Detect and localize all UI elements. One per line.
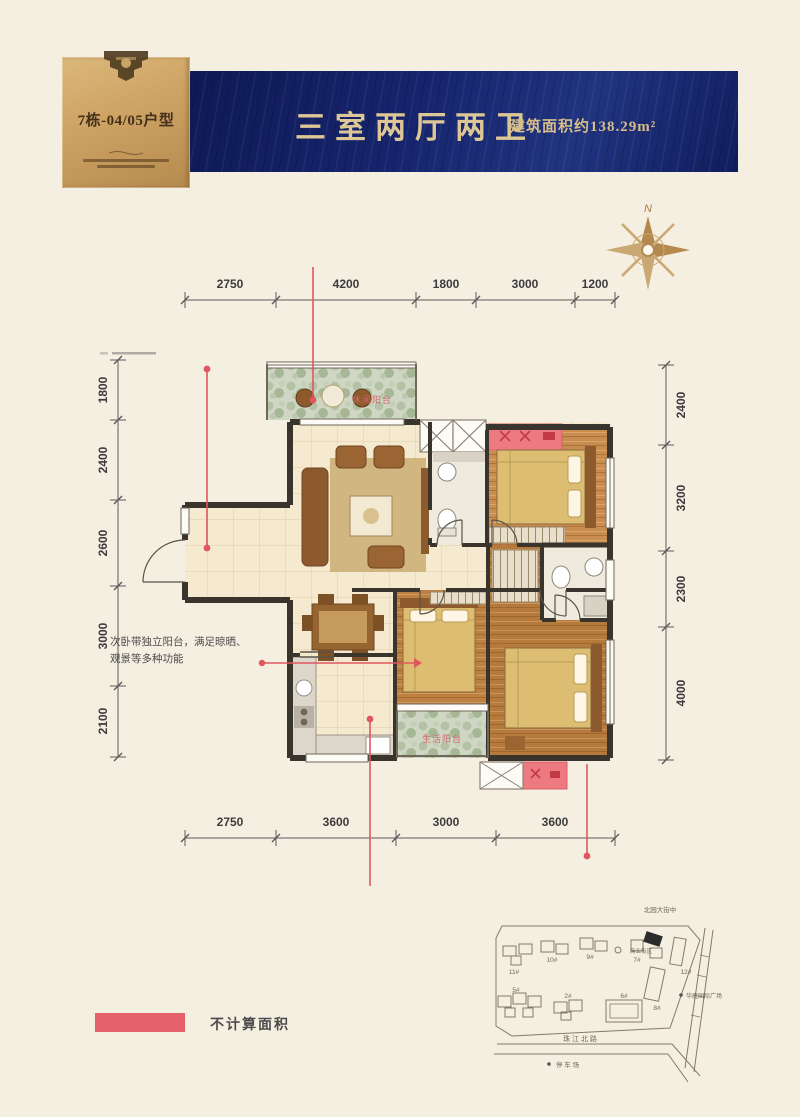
building-7-highlight [644, 932, 662, 946]
building-11 [503, 944, 532, 965]
headboard [585, 446, 596, 528]
kitchen-sink [296, 680, 312, 696]
road-bottom-label: 珠 江 北 路 [563, 1034, 597, 1043]
building-10 [541, 941, 568, 954]
dining-chair [373, 615, 384, 631]
illegible-micro-text [100, 352, 156, 355]
headboard [591, 644, 602, 732]
pillow [442, 610, 468, 622]
callout-line-2: 观景等多种功能 [110, 653, 184, 665]
nightstand [505, 736, 525, 750]
unit-badge: 7栋-04/05户型 [62, 57, 190, 188]
pillow [410, 610, 436, 622]
not-counted-legend-swatch [95, 1013, 185, 1032]
building-label: 12# [681, 969, 692, 976]
shower [584, 596, 608, 616]
armchair [374, 446, 404, 468]
dim-label-left: 2600 [96, 530, 110, 557]
sink [438, 463, 456, 481]
dim-label-left: 1800 [96, 377, 110, 404]
dim-label-top: 2750 [217, 277, 244, 291]
callout-line-1: 次卧带独立阳台，满足晾晒、 [110, 636, 247, 648]
pillow [568, 490, 581, 517]
dim-label-bottom: 3600 [323, 815, 350, 829]
pillow [574, 692, 587, 722]
building-label: 9# [586, 954, 594, 961]
pillow [568, 456, 581, 483]
illegible-micro-text [83, 159, 169, 162]
building-12 [670, 937, 687, 966]
poi-right-marker [679, 993, 683, 997]
dim-label-left: 2400 [96, 447, 110, 474]
poi-right-label: 华庭国际广场 [686, 992, 722, 1000]
sink [585, 558, 603, 576]
dim-label-top: 1200 [582, 277, 609, 291]
dim-label-right: 2400 [674, 392, 688, 419]
road-top-label: 北园大街中 [644, 905, 677, 914]
header-banner: 三室两厅两卫 建筑面积约138.29m² [190, 71, 738, 172]
balcony-top-label: 休闲阳台 [352, 394, 392, 405]
building-label: 10# [547, 957, 558, 964]
secondary-bedroom-callout: 次卧带独立阳台，满足晾晒、 观景等多种功能 [110, 634, 278, 669]
vanity [433, 452, 485, 462]
building-label: 2# [564, 993, 572, 1000]
building-5 [498, 993, 541, 1017]
building-label: 11# [509, 969, 520, 976]
building-label: 6# [620, 993, 628, 1000]
dim-label-top: 4200 [333, 277, 360, 291]
dim-label-right: 4000 [674, 680, 688, 707]
poi-center-label: 商业街区 [630, 947, 653, 955]
medallion-icon [94, 51, 158, 102]
entry-door [143, 540, 185, 582]
building-2 [554, 1000, 582, 1020]
building-8 [644, 967, 665, 1001]
dim-label-top: 3000 [512, 277, 539, 291]
road-bottom [494, 1044, 672, 1054]
compass-rose: N [606, 203, 690, 290]
compass-north-label: N [644, 203, 652, 215]
dim-label-bottom: 3600 [542, 815, 569, 829]
dim-label-left: 2100 [96, 708, 110, 735]
dining-chair [318, 594, 334, 605]
dining-chair [302, 615, 313, 631]
balcony-bottom-label: 生活阳台 [422, 733, 462, 744]
dim-label-left: 3000 [96, 623, 110, 650]
dim-label-right: 3200 [674, 485, 688, 512]
dim-label-top: 1800 [433, 277, 460, 291]
dim-label-bottom: 2750 [217, 815, 244, 829]
layout-title: 三室两厅两卫 [295, 102, 535, 147]
building-6 [606, 1000, 642, 1022]
dining-chair [352, 594, 368, 605]
planter [322, 385, 344, 407]
tv-cabinet [421, 468, 429, 554]
site-boundary [496, 926, 700, 1036]
pillow [574, 654, 587, 684]
road-right [685, 928, 713, 1072]
illegible-micro-text [97, 165, 155, 168]
building-label: 7# [633, 957, 641, 964]
poi-bottom-marker [547, 1062, 551, 1066]
built-area-label: 建筑面积约138.29m² [510, 115, 656, 136]
site-map [494, 926, 713, 1082]
balcony-slider [397, 704, 488, 711]
building-label: 5# [512, 987, 520, 994]
sofa [302, 468, 328, 566]
dim-label-bottom: 3000 [433, 815, 460, 829]
unit-number-label: 7栋-04/05户型 [62, 109, 190, 130]
dim-label-right: 2300 [674, 576, 688, 603]
poi-bottom-label: 停 车 场 [556, 1060, 580, 1069]
not-counted-legend-label: 不计算面积 [210, 1014, 290, 1034]
armchair [336, 446, 366, 468]
ac-platform-bottom [523, 762, 567, 789]
loveseat [368, 546, 404, 568]
toilet [552, 566, 570, 588]
flourish-ornament-icon [109, 143, 143, 149]
poi-center-marker [615, 947, 621, 953]
building-9 [580, 938, 607, 951]
floorplan-flyer: 三室两厅两卫 建筑面积约138.29m² 7栋-04/05户型 [0, 0, 800, 1117]
balcony-slider [300, 419, 404, 425]
building-label: 8# [653, 1005, 661, 1012]
